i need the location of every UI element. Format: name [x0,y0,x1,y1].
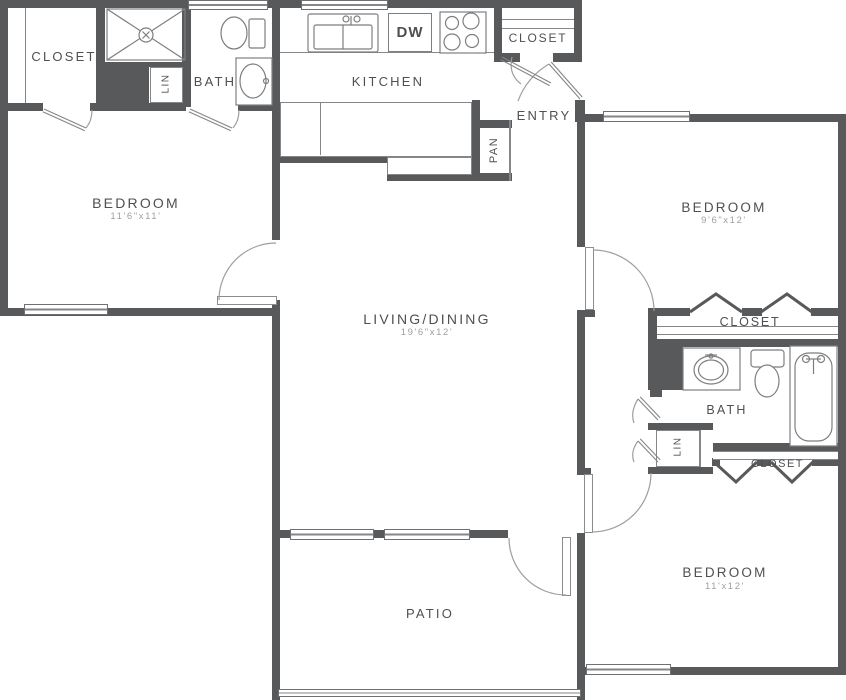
wall-outer-right [838,114,846,675]
dishwasher-label: DW [397,24,424,41]
wall-patio-top-1 [272,530,292,538]
wall-solid-block-left [105,62,149,107]
wall-mid-lower [272,300,280,700]
wall-hall-1 [577,122,585,247]
wall-bedtr-bottom-3 [811,308,846,316]
shower [107,9,185,60]
room-label-living: LIVING/DINING [357,311,497,327]
wall-pantry-top [477,120,512,128]
wall-hall-2 [577,310,585,470]
wall-bedroom-left-top-1 [0,103,43,111]
room-dims-bedroom-bottom-right: 11'x12' [665,581,785,592]
wall-mid-upper [272,0,280,240]
window-bedroom-left [24,304,108,315]
peninsula-counter-lower [387,157,472,175]
room-label-bedroom-left: BEDROOM [76,195,196,211]
room-label-entry: ENTRY [514,108,574,123]
window-bedroom-tr [603,111,690,122]
room-dims-bedroom-top-right: 9'6"x12' [664,215,784,226]
kitchen-counter-edge [280,52,494,53]
window-bedroom-br [586,664,671,675]
room-label-closet-top-left: CLOSET [14,49,114,64]
room-label-pantry: PAN [488,130,500,170]
peninsula-counter-divider [320,102,321,155]
door-panel-patio [562,537,571,596]
kitchen-sink [308,14,378,52]
wall-left [0,0,8,316]
wall-entry-closet-left [494,8,502,55]
room-label-closet-mid-right: CLOSET [700,315,800,329]
room-label-bath-left: BATH [186,74,244,89]
wall-bedroom-left-top-3 [238,103,280,111]
room-label-kitchen: KITCHEN [348,74,428,89]
room-label-closet-bottom-right: CLOSET [735,458,820,470]
window-bath-left [188,0,268,10]
wall-lin-right-bottom [648,467,713,474]
wall-right-top-b [688,114,846,122]
vanity-sink-right [683,348,740,390]
room-dims-living: 19'6"x12' [357,327,497,338]
room-label-lin-left: LIN [161,64,172,104]
wall-right-top-a [575,114,605,122]
lin-right-divider [699,431,700,466]
window-kitchen [301,0,388,10]
wall-bath-door-stub [650,390,662,397]
peninsula-counter-outline [280,102,472,157]
room-label-closet-entry: CLOSET [502,31,574,45]
toilet-left [221,17,265,49]
pantry-right-edge [509,120,511,181]
wall-bedroom-left-top-2 [90,103,186,111]
stove [440,12,486,53]
door-panel-bedroom-left [217,296,277,305]
room-dims-bedroom-left: 11'6"x11' [76,211,196,222]
patio-open-edge [278,689,581,697]
toilet-right [751,350,784,397]
door-panel-bedroom-tr [585,247,594,310]
wall-bath-right-top [648,339,846,347]
window-patio-2 [384,529,470,540]
wall-entry-closet-stub-l [494,53,520,62]
entry-closet-shelf [502,19,574,29]
room-label-bedroom-top-right: BEDROOM [664,200,784,215]
room-label-bath-right: BATH [698,403,756,417]
door-panel-bedroom-br [584,474,593,533]
wall-bath-right-block [648,347,683,390]
wall-patio-top-3 [468,530,508,538]
wall-shower-bath-divider [182,8,191,107]
dishwasher: DW [388,13,432,52]
wall-kitchen-right [574,8,582,61]
floor-plan: DW CLOSET LIN BATH BEDROOM 11'6"x11' KIT… [0,0,846,700]
window-patio-1 [290,529,374,540]
room-label-bedroom-bottom-right: BEDROOM [665,565,785,580]
bathtub [790,346,837,446]
wall-peninsula-right [472,100,480,181]
wall-top [0,0,582,8]
room-label-patio: PATIO [390,606,470,621]
room-label-lin-right: LIN [673,427,684,467]
